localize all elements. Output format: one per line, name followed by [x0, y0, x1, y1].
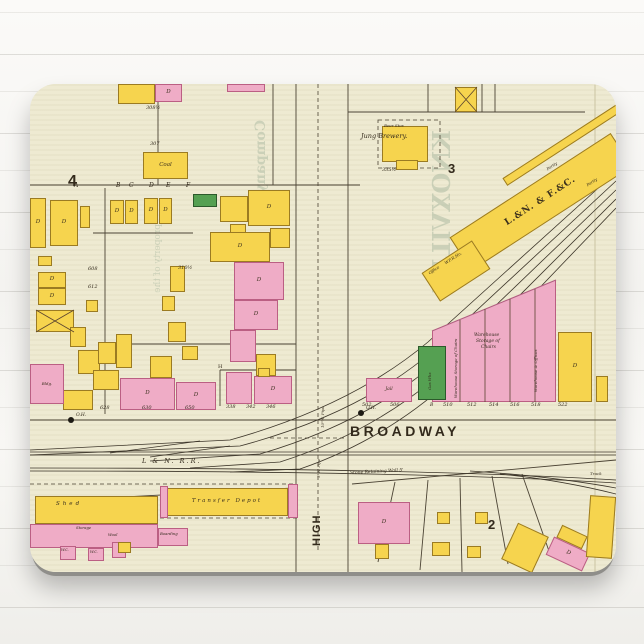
map-label: HIGH	[312, 515, 323, 547]
map-label: C	[129, 183, 134, 189]
map-label: Office	[428, 265, 440, 275]
map-label: 346	[266, 405, 276, 410]
map-label: 10"W. Pipe	[321, 406, 325, 428]
map-label: 518	[531, 403, 541, 408]
map-label: BROADWAY	[350, 424, 460, 438]
map-label: 342	[246, 405, 256, 410]
map-label: Boarding	[160, 532, 178, 536]
map-marker-dot	[68, 417, 74, 423]
map-label: Partly	[546, 161, 558, 171]
map-label: H	[218, 365, 222, 370]
map-label: Wool	[108, 533, 117, 537]
map-label: 650	[185, 406, 195, 411]
map-label: Storage	[76, 526, 91, 530]
map-label: 307	[150, 142, 160, 147]
map-label: 3	[448, 162, 455, 175]
map-label: O.H.	[76, 414, 86, 419]
map-label: E	[166, 183, 170, 189]
product-photo-wood-background: KNOXVILLECompany ofproperty of the	[0, 0, 644, 644]
map-label: Beer Stor.	[384, 124, 404, 128]
map-label: Warehouse	[474, 334, 499, 339]
map-label: Stone Retaining Wall 5'	[350, 469, 404, 476]
mousepad: KNOXVILLECompany ofproperty of the	[30, 84, 616, 572]
labels-layer: 432BROADWAYL & N. R.R.HIGH5"W. Pipe10"W.…	[30, 84, 616, 572]
map-label: Warehouse & Offices	[534, 349, 538, 392]
map-label: 510	[443, 403, 453, 408]
map-label: D	[149, 183, 154, 189]
map-label: B	[116, 183, 120, 189]
map-label: 338	[226, 405, 236, 410]
map-label: 612	[88, 285, 98, 290]
map-label: A	[74, 183, 78, 189]
map-label: 628	[100, 406, 110, 411]
map-label: 608	[88, 267, 98, 272]
map-label: Storage of	[476, 340, 500, 345]
map-label: 514	[489, 403, 499, 408]
map-label: W.F.R.Ho.	[444, 251, 463, 265]
map-label: Gas Wks	[428, 373, 432, 391]
map-label: Warehouse Storage of Chairs	[454, 339, 458, 398]
map-label: 310½	[178, 266, 192, 271]
map-label: 630	[142, 406, 152, 411]
map-label: Chairs	[481, 346, 496, 351]
map-marker-dot	[358, 410, 364, 416]
sanborn-map-print: KNOXVILLECompany ofproperty of the	[30, 84, 616, 572]
map-label: 335½	[382, 168, 396, 173]
map-label: 308½	[146, 106, 160, 111]
map-label: O.H.	[366, 407, 376, 412]
map-label: W.C.	[90, 551, 98, 555]
map-label: 512	[467, 403, 477, 408]
map-label: 2	[488, 518, 495, 531]
map-label: 516	[510, 403, 520, 408]
map-label: 5"W. Pipe	[317, 459, 321, 478]
map-label: Partly	[586, 177, 598, 187]
map-label: Track	[590, 472, 602, 476]
map-label: L & N. R.R.	[142, 458, 202, 465]
map-label: W.C.	[61, 549, 69, 553]
map-label: Jung Brewery.	[361, 133, 407, 140]
map-label: 506	[390, 403, 400, 408]
map-label: B	[430, 404, 433, 409]
map-label: 522	[558, 403, 568, 408]
map-label: Shed	[56, 502, 82, 508]
map-label: F	[186, 183, 190, 189]
